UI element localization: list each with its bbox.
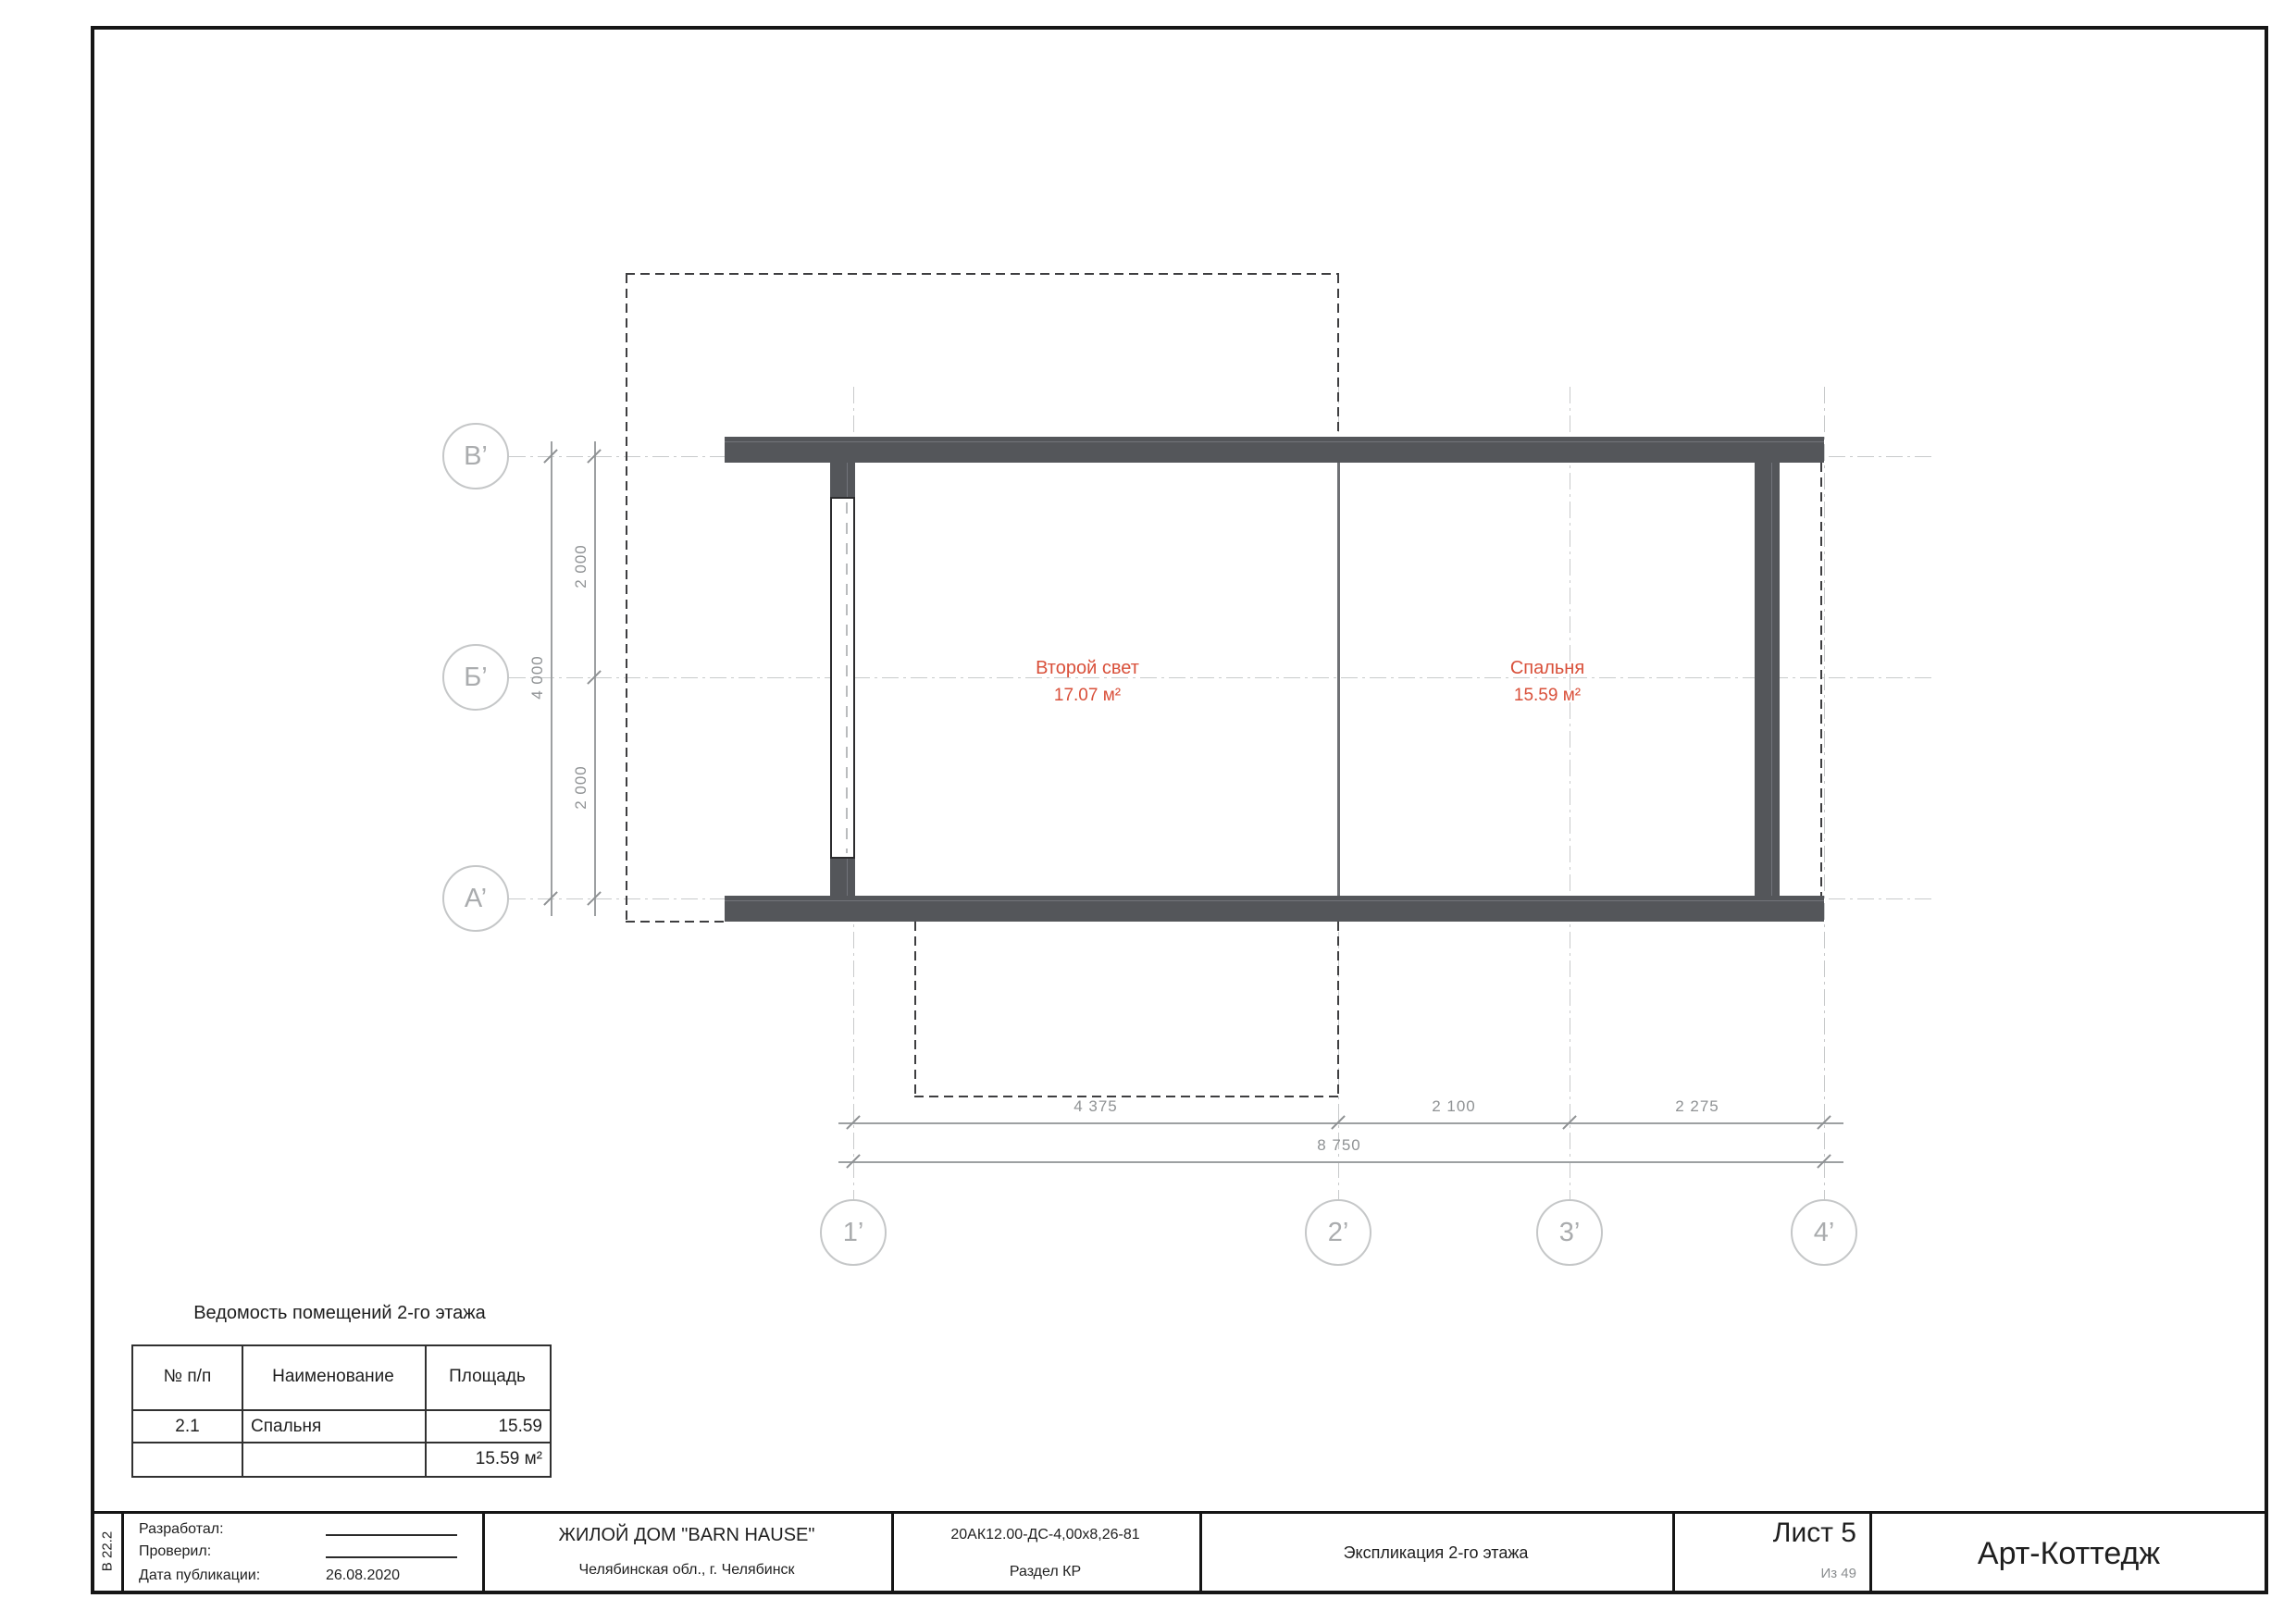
drawing-sheet: 2 000 2 000 4 000 4 375 2 100 2 275 8 75… [0, 0, 2296, 1623]
page-frame [91, 26, 2268, 1594]
